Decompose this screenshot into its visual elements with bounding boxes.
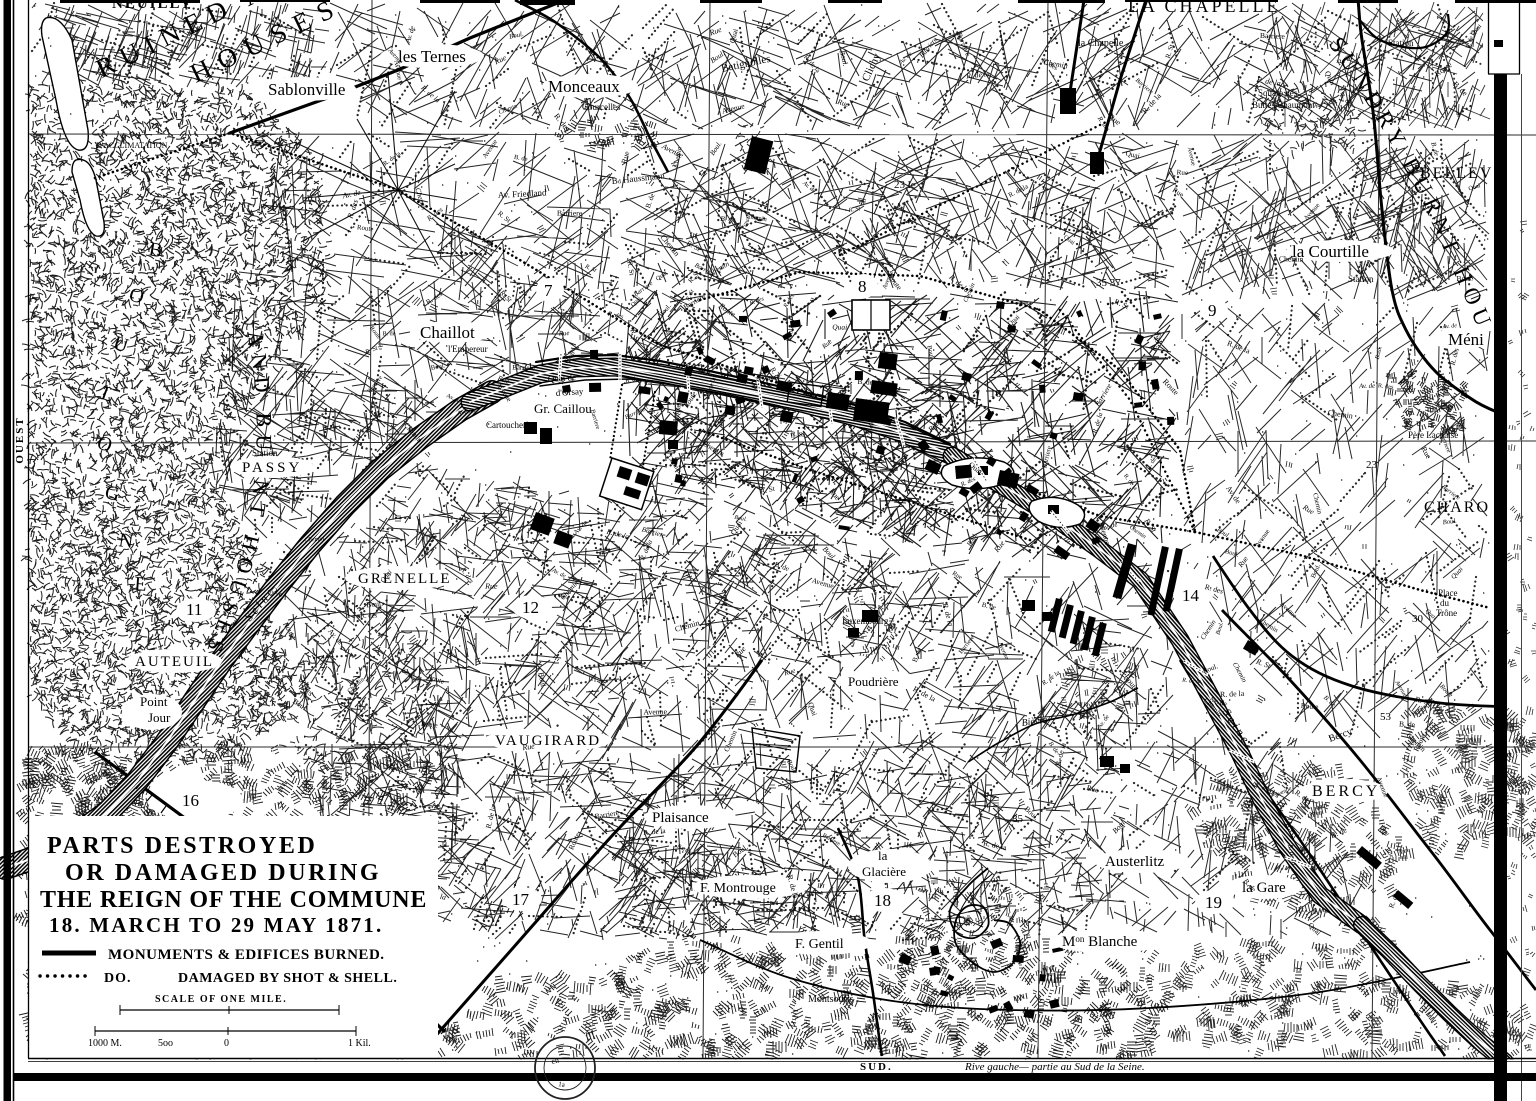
svg-text:B. de: B. de: [1399, 719, 1416, 729]
svg-text:7: 7: [544, 281, 553, 300]
svg-text:16: 16: [990, 388, 1002, 400]
svg-text:R. St: R. St: [877, 361, 894, 371]
svg-text:Chemin: Chemin: [1279, 254, 1304, 263]
svg-text:Rive gauche— partie au Sud de: Rive gauche— partie au Sud de la Seine.: [964, 1061, 1145, 1073]
svg-text:Austerlitz: Austerlitz: [1105, 854, 1164, 870]
svg-text:SCALE OF ONE MILE.: SCALE OF ONE MILE.: [155, 994, 287, 1005]
svg-text:la Chapelle: la Chapelle: [1078, 38, 1124, 49]
svg-text:Rue: Rue: [1176, 168, 1188, 177]
svg-text:Glacière: Glacière: [862, 864, 906, 879]
svg-text:Barriere: Barriere: [512, 364, 535, 373]
svg-text:Jour: Jour: [148, 710, 171, 725]
svg-text:0: 0: [224, 1038, 229, 1049]
svg-text:F. Gentil: F. Gentil: [795, 937, 844, 952]
svg-text:Rue: Rue: [484, 582, 498, 591]
svg-text:Poudrière: Poudrière: [848, 674, 899, 689]
svg-text:Monceaux: Monceaux: [548, 77, 620, 96]
svg-text:R. de la: R. de la: [1220, 689, 1245, 699]
svg-text:8: 8: [858, 277, 867, 296]
svg-text:16: 16: [182, 791, 199, 810]
svg-text:Route: Route: [421, 720, 438, 730]
svg-text:17: 17: [512, 890, 530, 909]
svg-text:85: 85: [1012, 813, 1024, 825]
svg-text:Avenue: Avenue: [511, 795, 531, 803]
svg-text:Boul.: Boul.: [1456, 273, 1473, 283]
svg-text:R. des: R. des: [360, 612, 377, 620]
svg-text:N: N: [117, 529, 134, 553]
svg-text:18. MARCH TO 29 MAY 1871.: 18. MARCH TO 29 MAY 1871.: [49, 913, 383, 937]
svg-text:Route: Route: [1300, 701, 1319, 711]
svg-text:PARTS DESTROYED: PARTS DESTROYED: [47, 833, 317, 859]
svg-text:PASSY: PASSY: [242, 460, 302, 476]
svg-text:THE REIGN OF THE COMMUNE: THE REIGN OF THE COMMUNE: [40, 887, 427, 913]
svg-text:OUEST: OUEST: [14, 416, 26, 463]
svg-text:Avenue: Avenue: [643, 707, 667, 716]
svg-text:5oo: 5oo: [158, 1038, 173, 1049]
svg-text:Av. de: Av. de: [1358, 383, 1375, 391]
svg-text:Gr. Caillou: Gr. Caillou: [534, 401, 592, 416]
svg-text:Point: Point: [140, 694, 168, 709]
svg-text:53: 53: [1380, 711, 1392, 723]
svg-text:18: 18: [874, 891, 891, 910]
svg-text:Square des: Square des: [1258, 88, 1298, 98]
svg-text:F. Montrouge: F. Montrouge: [700, 881, 776, 896]
svg-text:les Ternes: les Ternes: [398, 47, 466, 66]
svg-text:11: 11: [186, 600, 202, 619]
svg-text:Sablonville: Sablonville: [268, 80, 345, 99]
svg-text:Méni: Méni: [1448, 330, 1484, 349]
svg-text:Rue: Rue: [558, 330, 570, 338]
svg-text:B. de: B. de: [720, 214, 736, 224]
svg-text:CHARO: CHARO: [1424, 499, 1490, 516]
svg-text:Chemin: Chemin: [304, 535, 324, 543]
svg-text:la: la: [878, 848, 888, 863]
svg-text:1 Kil.: 1 Kil.: [348, 1038, 371, 1049]
svg-text:14: 14: [1182, 586, 1200, 605]
svg-text:DAMAGED BY SHOT & SHELL.: DAMAGED BY SHOT & SHELL.: [178, 971, 397, 986]
svg-text:BERCY: BERCY: [1312, 783, 1380, 800]
svg-text:Luxembourg: Luxembourg: [842, 616, 889, 626]
svg-text:Courcelles: Courcelles: [582, 102, 621, 112]
svg-text:Barriere: Barriere: [557, 208, 583, 217]
svg-text:Trône: Trône: [1436, 608, 1457, 618]
svg-text:VAUGIRARD: VAUGIRARD: [495, 733, 601, 749]
svg-text:19: 19: [1205, 893, 1222, 912]
svg-text:Station: Station: [1388, 38, 1414, 48]
svg-text:du: du: [1440, 598, 1450, 608]
svg-text:9: 9: [1208, 301, 1217, 320]
svg-text:Quai: Quai: [832, 322, 847, 331]
svg-text:DO.: DO.: [104, 971, 132, 986]
svg-text:E: E: [134, 573, 148, 596]
svg-text:GRENELLE: GRENELLE: [358, 571, 451, 587]
svg-text:Station: Station: [1348, 274, 1374, 284]
svg-text:AUTEUIL: AUTEUIL: [135, 654, 214, 670]
svg-text:1000 M.: 1000 M.: [88, 1038, 122, 1049]
svg-text:Montsouris: Montsouris: [808, 994, 854, 1005]
svg-text:Chaillot: Chaillot: [420, 323, 475, 342]
svg-text:12: 12: [522, 598, 539, 617]
svg-text:39: 39: [1248, 644, 1260, 656]
svg-text:LA CHAPELLE: LA CHAPELLE: [1128, 0, 1281, 16]
svg-text:d'Orsay: d'Orsay: [555, 386, 584, 398]
svg-text:Plaisance: Plaisance: [652, 810, 709, 826]
svg-text:R. St: R. St: [790, 431, 804, 439]
svg-text:Boul.: Boul.: [366, 599, 384, 610]
svg-text:Père Lachaise: Père Lachaise: [1408, 430, 1458, 440]
svg-text:Station: Station: [252, 448, 278, 458]
svg-text:D'ACCLIMATATION: D'ACCLIMATATION: [96, 141, 168, 150]
svg-text:30: 30: [1412, 613, 1424, 625]
svg-text:23: 23: [1366, 459, 1378, 471]
svg-text:SUD.: SUD.: [860, 1061, 893, 1073]
svg-text:Mon Blanche: Mon Blanche: [1062, 934, 1138, 950]
svg-text:Cartoucherie: Cartoucherie: [486, 420, 532, 430]
svg-text:B. de: B. de: [857, 377, 873, 387]
svg-text:BELLEV: BELLEV: [1420, 165, 1493, 182]
svg-text:OR DAMAGED DURING: OR DAMAGED DURING: [65, 860, 381, 886]
svg-text:35 37: 35 37: [1096, 277, 1121, 289]
svg-text:Barriere: Barriere: [1260, 31, 1286, 41]
svg-text:Place: Place: [1438, 588, 1458, 598]
svg-text:l'Empereur: l'Empereur: [448, 344, 488, 354]
svg-text:la Courtille: la Courtille: [1292, 242, 1369, 261]
svg-text:23 le: 23 le: [894, 179, 916, 191]
svg-text:MONUMENTS & EDIFICES BURNED.: MONUMENTS & EDIFICES BURNED.: [108, 947, 385, 963]
svg-text:B. de: B. de: [382, 331, 395, 337]
svg-text:Quai de: Quai de: [547, 372, 576, 384]
